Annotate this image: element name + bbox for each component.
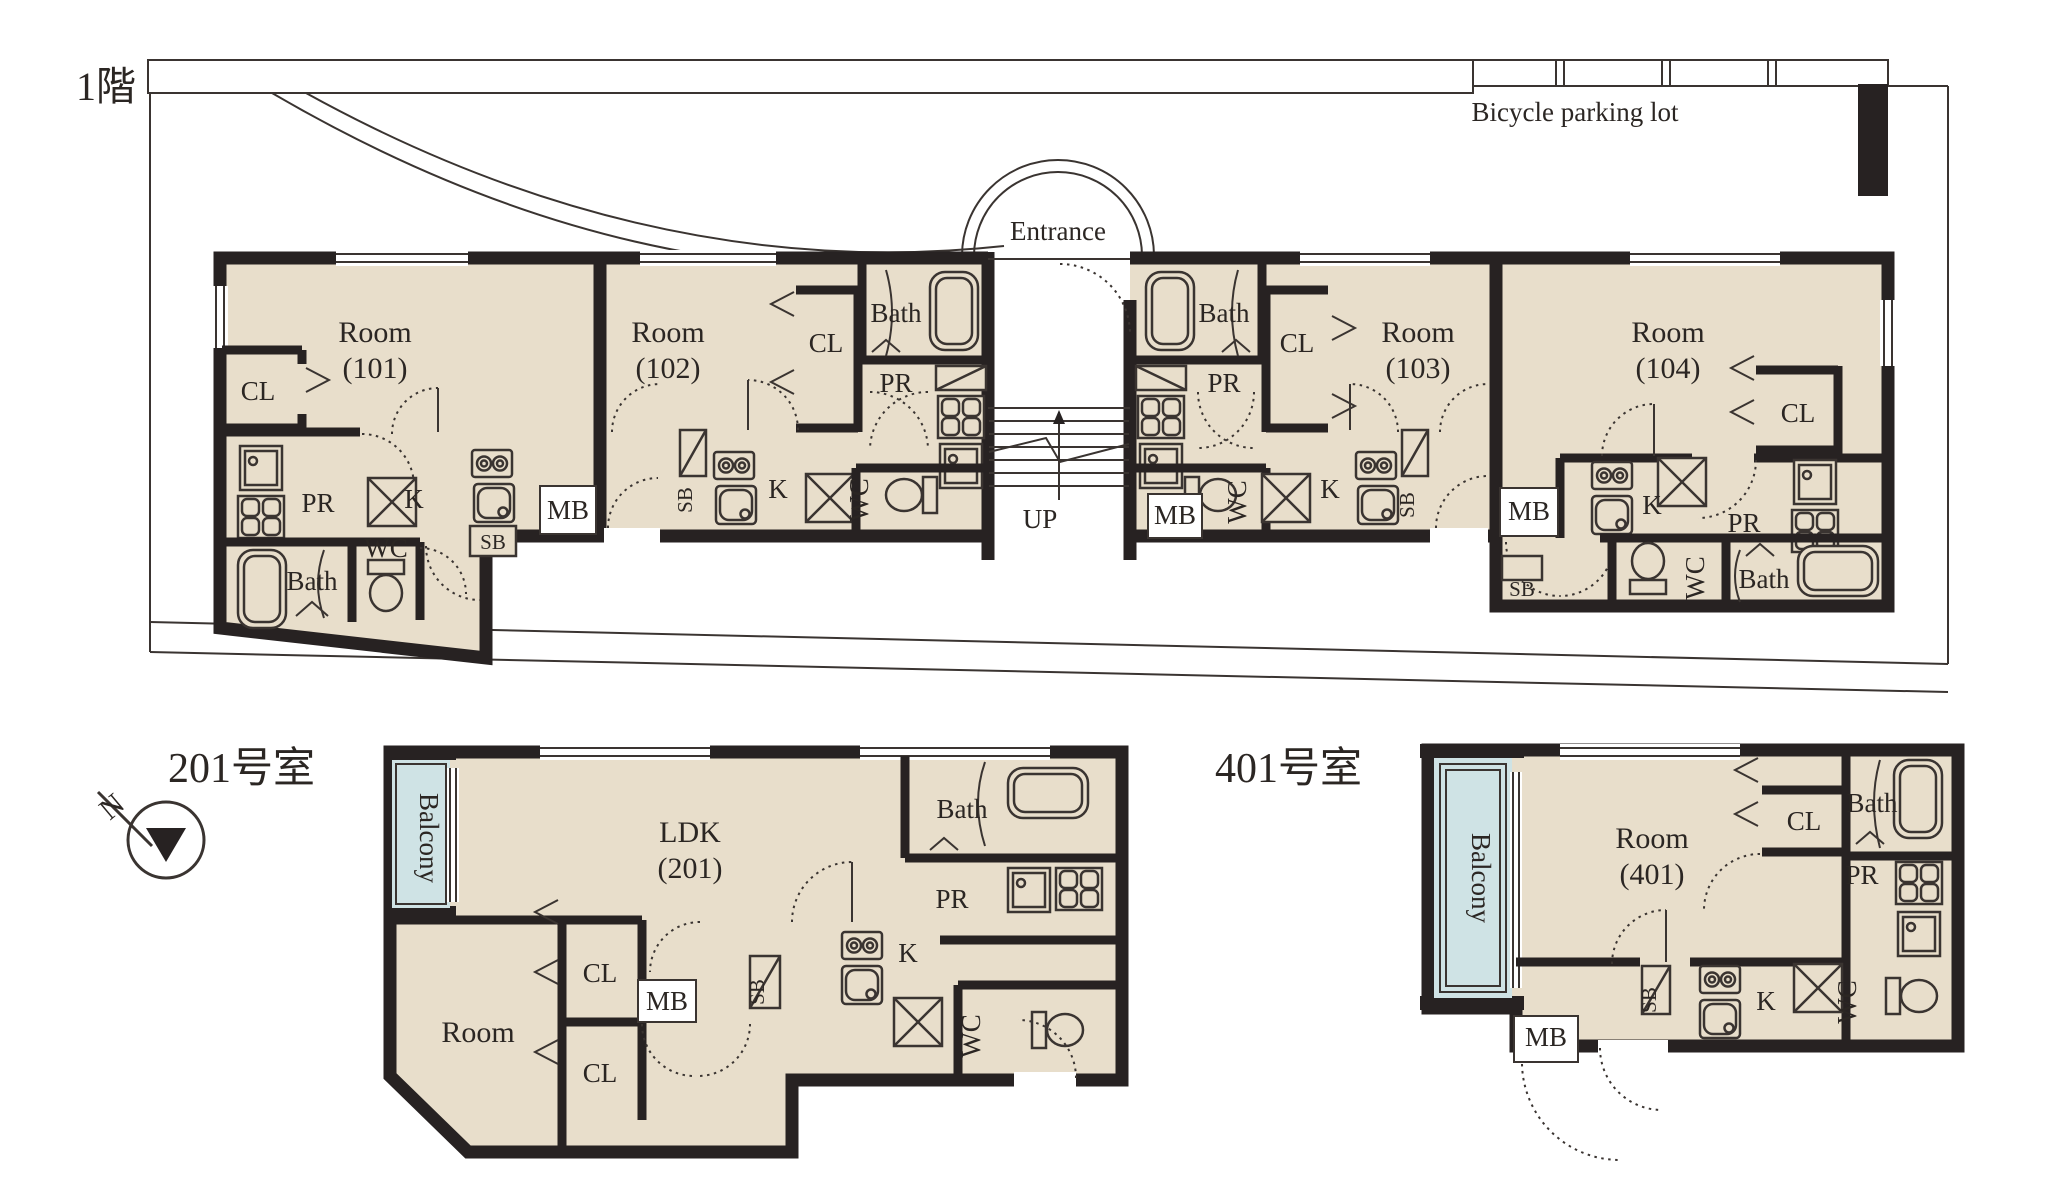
mb-201-label: MB	[646, 986, 688, 1016]
pr-201-label: PR	[935, 884, 968, 914]
room-401-label: Room	[1615, 822, 1688, 855]
pr-401-label: PR	[1845, 860, 1878, 890]
k-401-label: K	[1756, 986, 1776, 1016]
bath-201-label: Bath	[937, 794, 988, 824]
wc-401-label: WC	[1832, 980, 1862, 1024]
wc-103-label: WC	[1222, 480, 1252, 524]
entrance-label: Entrance	[1010, 216, 1106, 246]
plan-401-title: 401号室	[1215, 745, 1362, 792]
pr-101-label: PR	[301, 488, 334, 518]
pr-102-label: PR	[879, 368, 912, 398]
room-103-number: (103)	[1386, 352, 1451, 385]
room-102-number: (102)	[636, 352, 701, 385]
driveway-curve	[272, 93, 1000, 269]
wc-101-label: WC	[364, 533, 408, 563]
mb-101-label: MB	[547, 495, 589, 525]
plan-201: Balcony LDK (201) Room CL CL MB SB K Bat…	[384, 744, 1122, 1152]
bath-102-label: Bath	[871, 298, 922, 328]
floor1-title: 1階	[76, 64, 136, 109]
k-102-label: K	[768, 474, 788, 504]
sb-104-label: SB	[1509, 577, 1535, 601]
room-104-number: (104)	[1636, 352, 1701, 385]
room-401-number: (401)	[1620, 858, 1685, 891]
ldk-201-label: LDK	[659, 816, 721, 849]
cl-103-label: CL	[1280, 328, 1315, 358]
pr-103-label: PR	[1207, 368, 1240, 398]
room-104-label: Room	[1631, 316, 1704, 349]
sb-101-label: SB	[480, 530, 506, 554]
wc-102-label: WC	[844, 478, 874, 522]
mb-103-label: MB	[1154, 500, 1196, 530]
room-101-number: (101)	[343, 352, 408, 385]
cl1-201-label: CL	[583, 958, 618, 988]
cl-104-label: CL	[1781, 398, 1816, 428]
ldk-201-number: (201)	[658, 852, 723, 885]
wc-104-label: WC	[1680, 556, 1710, 600]
bath-101-label: Bath	[287, 566, 338, 596]
sb-401-label: SB	[1637, 987, 1661, 1013]
cl-102-label: CL	[809, 328, 844, 358]
sb-103-label: SB	[1395, 492, 1419, 518]
bath-401-label: Bath	[1847, 788, 1898, 818]
balcony-201-label: Balcony	[414, 793, 444, 883]
balcony-401-label: Balcony	[1466, 833, 1496, 923]
pr-104-label: PR	[1727, 508, 1760, 538]
bath-103-label: Bath	[1199, 298, 1250, 328]
plan-201-title: 201号室	[168, 745, 315, 792]
bicycle-parking-label: Bicycle parking lot	[1472, 97, 1679, 127]
bath-104-label: Bath	[1739, 564, 1790, 594]
room-201-label: Room	[441, 1016, 514, 1049]
room-102-label: Room	[631, 316, 704, 349]
cl2-201-label: CL	[583, 1058, 618, 1088]
mb-401-label: MB	[1525, 1022, 1567, 1052]
mb-104-label: MB	[1508, 496, 1550, 526]
room-101-label: Room	[338, 316, 411, 349]
k-101-label: K	[404, 484, 424, 514]
floorplan-svg: 1階 Bicycle parking lot Entrance	[0, 0, 2060, 1198]
bike-area-wall	[1858, 84, 1888, 196]
sb-201-label: SB	[745, 979, 769, 1005]
stairs-up-label: UP	[1023, 504, 1058, 534]
north-arrow: N	[93, 787, 204, 878]
k-103-label: K	[1320, 474, 1340, 504]
sb-102-label: SB	[673, 487, 697, 513]
cl-101-label: CL	[241, 376, 276, 406]
k-201-label: K	[898, 938, 918, 968]
floorplan-page: 1階 Bicycle parking lot Entrance	[0, 0, 2060, 1198]
cl-401-label: CL	[1787, 806, 1822, 836]
room-103-label: Room	[1381, 316, 1454, 349]
stair-hall: UP	[988, 250, 1130, 560]
k-104-label: K	[1642, 490, 1662, 520]
wc-201-label: WC	[956, 1014, 986, 1058]
plan-401: Balcony Room (401) CL Bath PR MB SB K WC	[1420, 744, 1958, 1160]
